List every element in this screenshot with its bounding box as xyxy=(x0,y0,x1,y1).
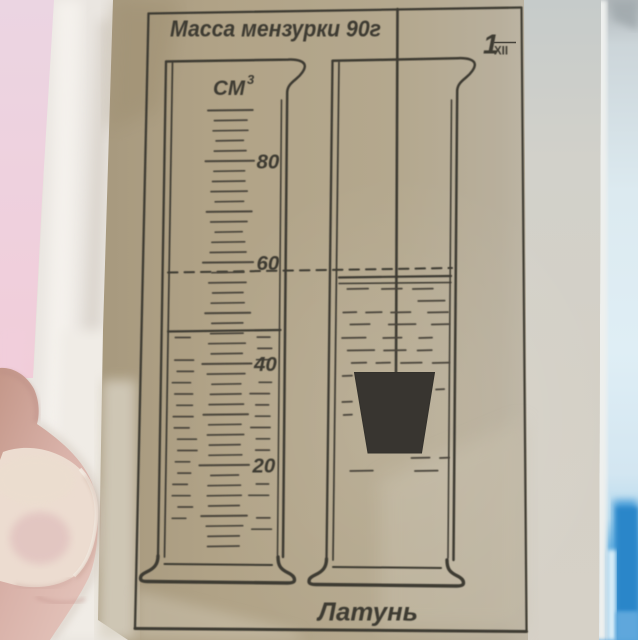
svg-text:Латунь: Латунь xyxy=(316,597,418,627)
svg-text:СМ: СМ xyxy=(213,76,246,100)
svg-text:40: 40 xyxy=(253,353,277,376)
svg-text:60: 60 xyxy=(257,252,280,275)
svg-text:Масса мензурки 90г: Масса мензурки 90г xyxy=(170,16,381,42)
svg-text:3: 3 xyxy=(247,72,255,87)
svg-text:20: 20 xyxy=(252,455,276,478)
svg-text:80: 80 xyxy=(257,151,280,174)
svg-text:XII: XII xyxy=(494,46,508,58)
